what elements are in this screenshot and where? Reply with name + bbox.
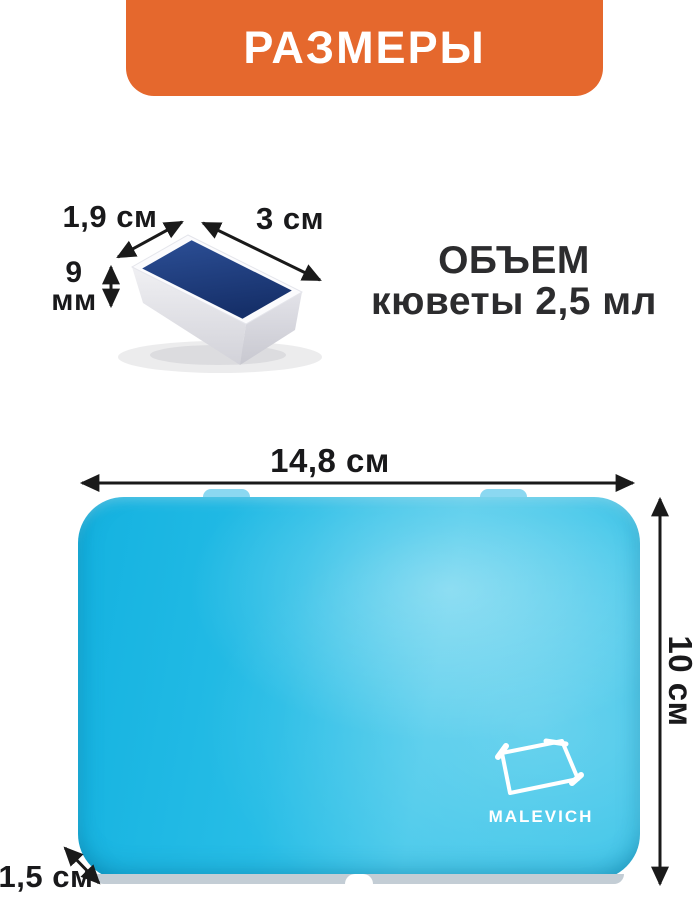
annotation-layer: [0, 0, 696, 900]
tin-depth-arrow: [65, 848, 99, 883]
cuvette-photo: [118, 235, 322, 373]
page: { "banner": { "title": "РАЗМЕРЫ", "bg_co…: [0, 0, 696, 900]
